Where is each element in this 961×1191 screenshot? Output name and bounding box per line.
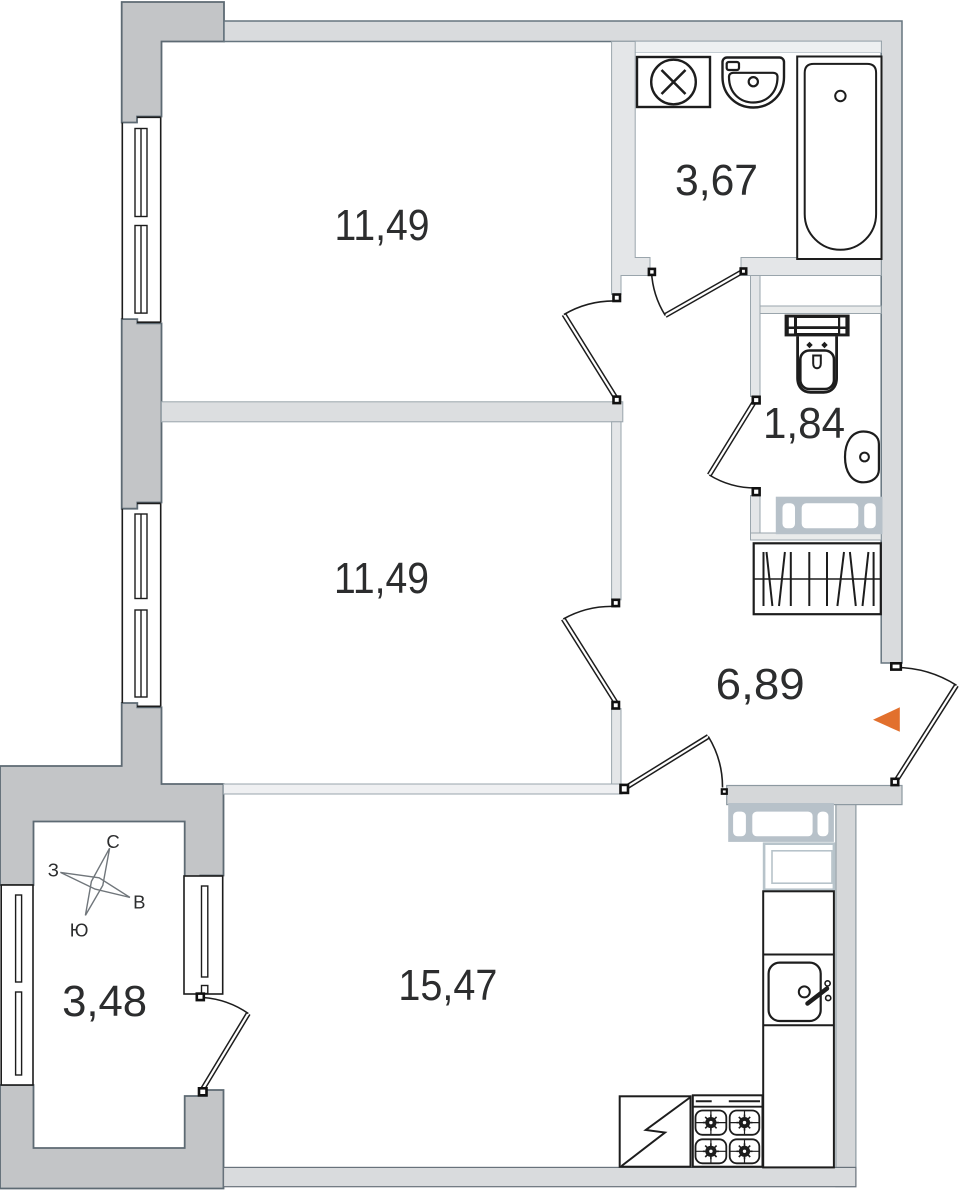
svg-text:С: С: [106, 831, 119, 852]
svg-text:11,49: 11,49: [335, 201, 430, 250]
svg-text:3,67: 3,67: [675, 156, 758, 205]
svg-text:Ю: Ю: [70, 919, 89, 940]
svg-text:1,84: 1,84: [763, 399, 845, 448]
svg-text:3,48: 3,48: [62, 977, 147, 1026]
svg-text:6,89: 6,89: [716, 660, 805, 709]
svg-text:15,47: 15,47: [398, 961, 497, 1010]
svg-text:З: З: [48, 859, 59, 880]
svg-text:11,49: 11,49: [334, 554, 429, 603]
svg-text:В: В: [133, 891, 145, 912]
